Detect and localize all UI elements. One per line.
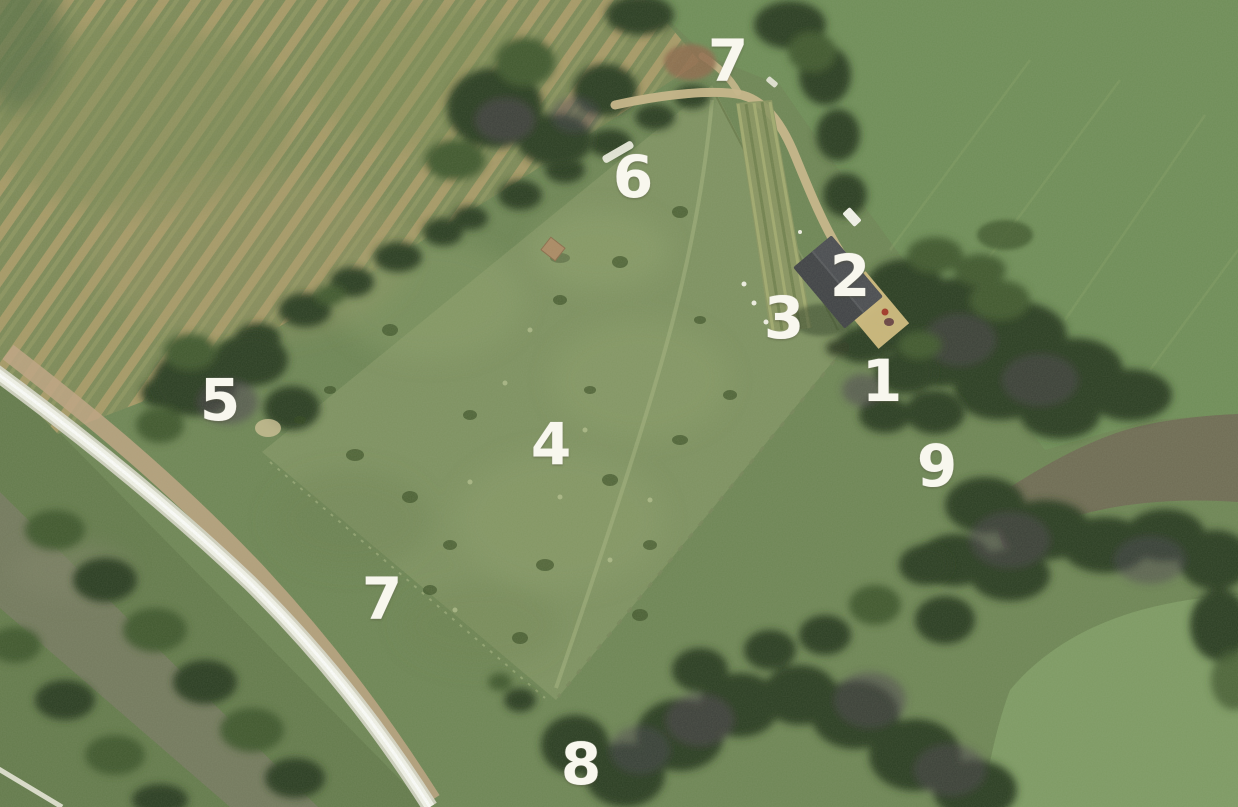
marker-label: 5 xyxy=(200,371,238,429)
marker-label: 3 xyxy=(764,289,802,347)
marker-label: 6 xyxy=(613,148,651,206)
marker-label: 9 xyxy=(917,437,955,495)
grain-overlay xyxy=(0,0,1238,807)
marker-label: 2 xyxy=(830,247,868,305)
marker-label: 4 xyxy=(531,415,569,473)
marker-label: 8 xyxy=(561,735,599,793)
terrain-layers xyxy=(0,0,1238,807)
aerial-photo[interactable]: 7 6 2 3 1 5 4 9 7 8 xyxy=(0,0,1238,807)
marker-label: 1 xyxy=(862,352,900,410)
marker-label: 7 xyxy=(362,570,400,628)
marker-label: 7 xyxy=(708,32,746,90)
